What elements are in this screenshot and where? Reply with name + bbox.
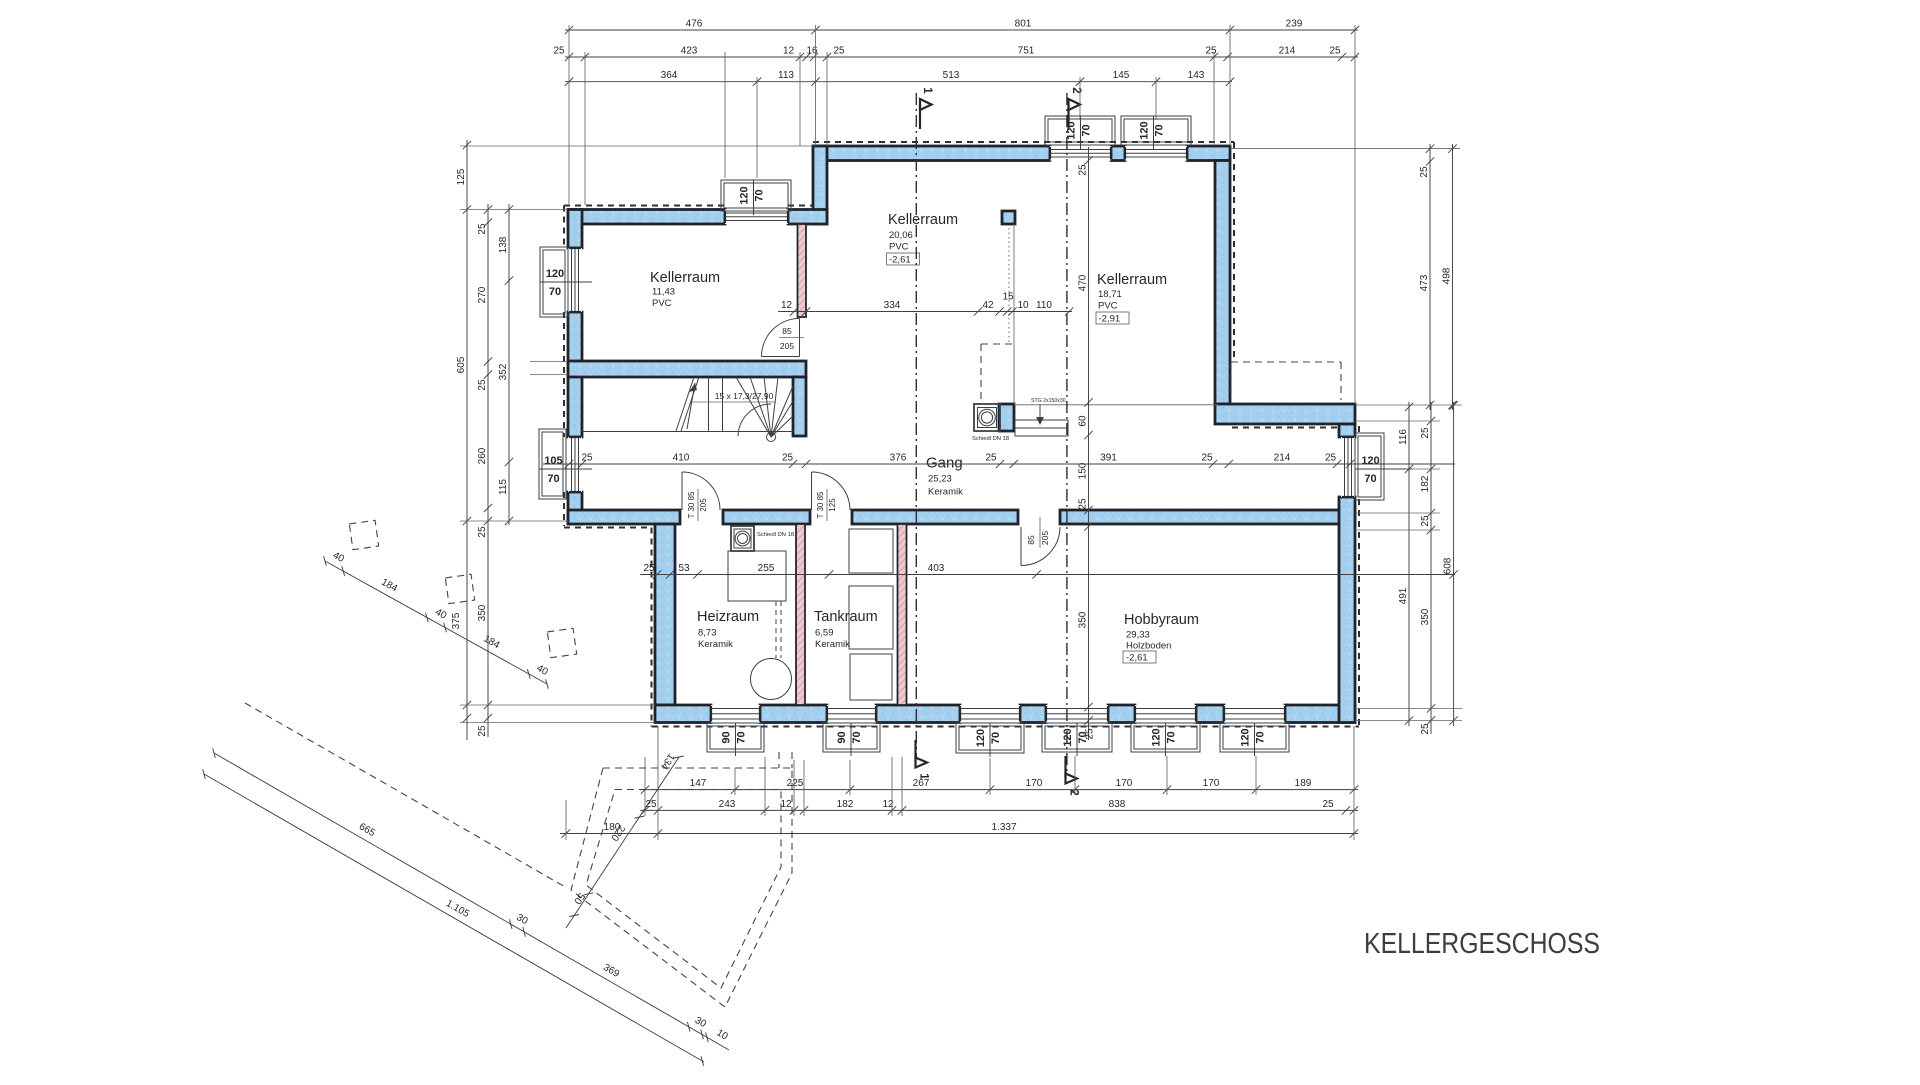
svg-text:Heizraum: Heizraum	[697, 609, 759, 625]
svg-text:25: 25	[1201, 453, 1213, 464]
svg-text:PVC: PVC	[652, 298, 672, 309]
svg-text:25,23: 25,23	[928, 474, 952, 485]
svg-text:25: 25	[833, 46, 845, 57]
svg-text:25: 25	[477, 379, 488, 391]
svg-text:214: 214	[1274, 453, 1291, 464]
svg-text:85: 85	[782, 326, 792, 336]
svg-text:189: 189	[1295, 778, 1312, 789]
svg-text:225: 225	[787, 778, 804, 789]
svg-text:25: 25	[1329, 46, 1341, 57]
svg-text:6,59: 6,59	[815, 628, 834, 639]
svg-text:-2,61: -2,61	[889, 255, 911, 266]
svg-text:391: 391	[1100, 453, 1117, 464]
svg-text:42: 42	[982, 300, 994, 311]
svg-text:120: 120	[1139, 121, 1151, 139]
svg-text:12: 12	[783, 46, 795, 57]
svg-text:70: 70	[1166, 731, 1178, 743]
svg-text:Holzboden: Holzboden	[1126, 641, 1171, 652]
svg-text:KELLERGESCHOSS: KELLERGESCHOSS	[1364, 928, 1600, 960]
svg-text:239: 239	[1286, 19, 1303, 30]
svg-text:115: 115	[498, 479, 509, 495]
svg-text:2: 2	[1068, 789, 1080, 795]
svg-text:410: 410	[673, 453, 690, 464]
svg-text:403: 403	[928, 563, 945, 574]
svg-text:25: 25	[1322, 799, 1334, 810]
svg-text:70: 70	[1154, 124, 1166, 136]
svg-text:60: 60	[1077, 415, 1088, 427]
svg-text:Keramik: Keramik	[815, 639, 850, 650]
svg-text:25: 25	[1420, 515, 1431, 527]
svg-text:113: 113	[778, 70, 794, 81]
svg-text:70: 70	[547, 473, 559, 485]
svg-text:Schiedl DN 18: Schiedl DN 18	[972, 436, 1009, 442]
svg-text:105: 105	[544, 455, 562, 467]
svg-text:120: 120	[546, 268, 564, 280]
svg-text:214: 214	[1279, 46, 1296, 57]
svg-text:70: 70	[1364, 473, 1376, 485]
svg-text:25: 25	[985, 453, 997, 464]
svg-text:70: 70	[754, 189, 766, 201]
svg-text:12: 12	[780, 799, 792, 810]
svg-text:125: 125	[456, 168, 467, 185]
svg-text:PVC: PVC	[889, 242, 909, 253]
svg-text:8,73: 8,73	[698, 628, 717, 639]
svg-text:170: 170	[1026, 778, 1043, 789]
svg-text:751: 751	[1018, 46, 1035, 57]
svg-text:376: 376	[890, 453, 907, 464]
svg-text:Schiedl DN 18: Schiedl DN 18	[757, 532, 794, 538]
svg-text:25: 25	[1420, 427, 1431, 439]
svg-text:16: 16	[806, 46, 818, 57]
svg-text:25: 25	[477, 223, 488, 235]
svg-text:470: 470	[1077, 274, 1088, 291]
svg-text:Kellerraum: Kellerraum	[650, 270, 720, 286]
svg-text:364: 364	[661, 70, 678, 81]
svg-text:1.337: 1.337	[991, 822, 1016, 833]
svg-text:120: 120	[975, 729, 987, 747]
svg-text:170: 170	[1116, 778, 1133, 789]
svg-text:255: 255	[758, 563, 775, 574]
svg-text:120: 120	[1240, 728, 1252, 746]
svg-text:18,71: 18,71	[1098, 289, 1122, 300]
svg-text:Gang: Gang	[926, 455, 963, 472]
svg-text:170: 170	[1203, 778, 1220, 789]
svg-text:29,33: 29,33	[1126, 630, 1150, 641]
svg-text:25: 25	[1205, 46, 1217, 57]
svg-text:120: 120	[1151, 728, 1163, 746]
svg-text:801: 801	[1015, 19, 1032, 30]
svg-text:473: 473	[1419, 274, 1430, 291]
svg-text:-2,91: -2,91	[1099, 314, 1121, 325]
svg-text:350: 350	[1077, 611, 1088, 628]
svg-text:334: 334	[884, 300, 901, 311]
svg-text:PVC: PVC	[1098, 301, 1118, 312]
svg-text:T 30 85: T 30 85	[816, 491, 825, 519]
svg-text:375: 375	[451, 612, 462, 629]
svg-text:15: 15	[1002, 292, 1014, 303]
svg-text:608: 608	[1442, 557, 1453, 574]
svg-text:25: 25	[643, 563, 655, 574]
svg-text:53: 53	[678, 563, 690, 574]
svg-text:70: 70	[549, 286, 561, 298]
svg-text:205: 205	[1040, 531, 1050, 545]
svg-text:423: 423	[681, 46, 698, 57]
svg-text:145: 145	[1113, 70, 1130, 81]
svg-text:110: 110	[1036, 300, 1052, 311]
svg-text:270: 270	[477, 286, 488, 303]
svg-text:116: 116	[1398, 429, 1409, 445]
svg-text:T 30 85: T 30 85	[687, 491, 696, 519]
svg-text:25: 25	[477, 725, 488, 737]
svg-text:12: 12	[781, 300, 793, 311]
svg-text:-2,61: -2,61	[1126, 653, 1148, 664]
svg-text:11,43: 11,43	[652, 287, 675, 298]
svg-text:10: 10	[1017, 300, 1029, 311]
svg-text:25: 25	[1077, 498, 1088, 510]
svg-text:350: 350	[1420, 608, 1431, 625]
svg-text:70: 70	[1081, 124, 1093, 136]
svg-text:25: 25	[782, 453, 794, 464]
svg-text:838: 838	[1109, 799, 1126, 810]
svg-text:90: 90	[721, 731, 733, 743]
svg-text:491: 491	[1398, 587, 1409, 604]
svg-text:70: 70	[990, 732, 1002, 744]
svg-text:Keramik: Keramik	[698, 639, 733, 650]
svg-text:Keramik: Keramik	[928, 487, 963, 498]
svg-text:Kellerraum: Kellerraum	[1097, 272, 1167, 288]
svg-text:352: 352	[498, 363, 509, 380]
svg-text:1: 1	[921, 87, 933, 94]
svg-text:125: 125	[828, 498, 837, 512]
svg-text:120: 120	[739, 186, 751, 204]
svg-text:182: 182	[837, 799, 854, 810]
svg-text:205: 205	[699, 498, 708, 512]
svg-text:70: 70	[736, 731, 748, 743]
svg-text:70: 70	[1255, 731, 1267, 743]
svg-text:120: 120	[1062, 728, 1074, 746]
svg-text:25: 25	[1085, 728, 1096, 740]
svg-text:498: 498	[1441, 267, 1452, 284]
svg-text:350: 350	[477, 604, 488, 621]
svg-text:25: 25	[581, 453, 593, 464]
svg-text:70: 70	[851, 731, 863, 743]
svg-text:605: 605	[456, 356, 467, 373]
svg-text:STG 2x150x30: STG 2x150x30	[1031, 398, 1066, 404]
svg-text:120: 120	[1361, 455, 1379, 467]
svg-text:85: 85	[1026, 535, 1036, 545]
svg-text:267: 267	[913, 778, 930, 789]
svg-text:Hobbyraum: Hobbyraum	[1124, 612, 1199, 628]
svg-text:25: 25	[553, 46, 565, 57]
svg-text:147: 147	[690, 778, 707, 789]
svg-text:25: 25	[1419, 166, 1430, 178]
svg-text:25: 25	[477, 526, 488, 538]
svg-text:25: 25	[1325, 453, 1337, 464]
svg-text:Tankraum: Tankraum	[814, 609, 878, 625]
svg-text:150: 150	[1077, 462, 1088, 479]
svg-text:90: 90	[836, 731, 848, 743]
svg-text:476: 476	[686, 19, 703, 30]
svg-text:182: 182	[1420, 475, 1431, 492]
svg-text:25: 25	[1420, 723, 1431, 735]
svg-text:243: 243	[719, 799, 736, 810]
svg-text:20,06: 20,06	[889, 230, 913, 241]
svg-text:205: 205	[780, 341, 794, 351]
svg-text:513: 513	[943, 70, 960, 81]
svg-text:25: 25	[1077, 164, 1088, 176]
svg-text:Kellerraum: Kellerraum	[888, 212, 958, 228]
svg-text:260: 260	[477, 447, 488, 464]
svg-text:138: 138	[498, 236, 509, 253]
svg-text:143: 143	[1188, 70, 1205, 81]
svg-text:15 x 17,3/27,90: 15 x 17,3/27,90	[715, 391, 774, 401]
